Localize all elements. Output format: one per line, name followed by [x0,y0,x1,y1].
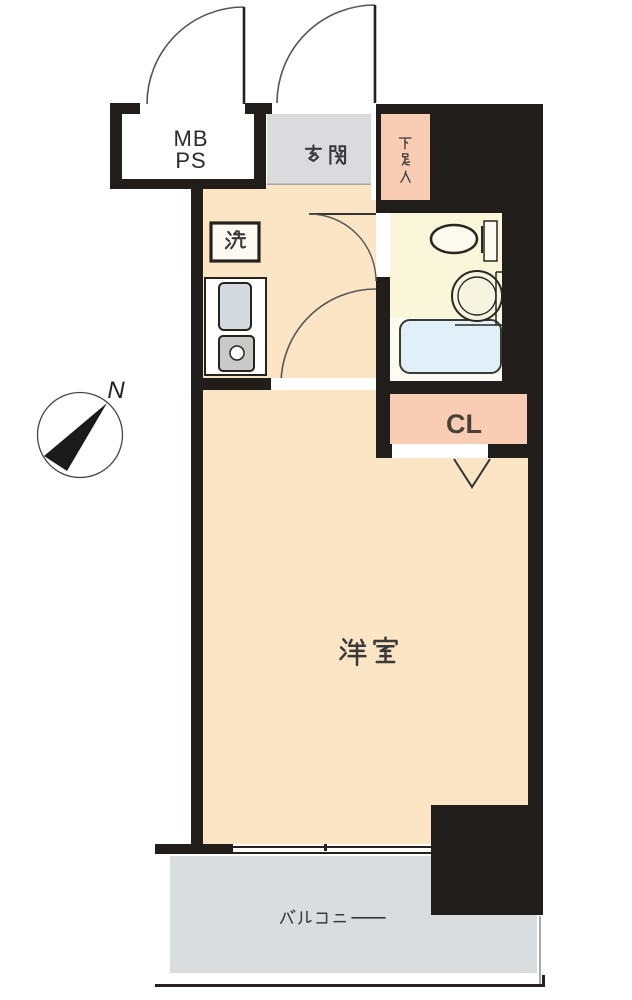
svg-text:PS: PS [175,148,206,173]
svg-text:CL: CL [446,409,482,439]
svg-text:N: N [107,377,125,404]
